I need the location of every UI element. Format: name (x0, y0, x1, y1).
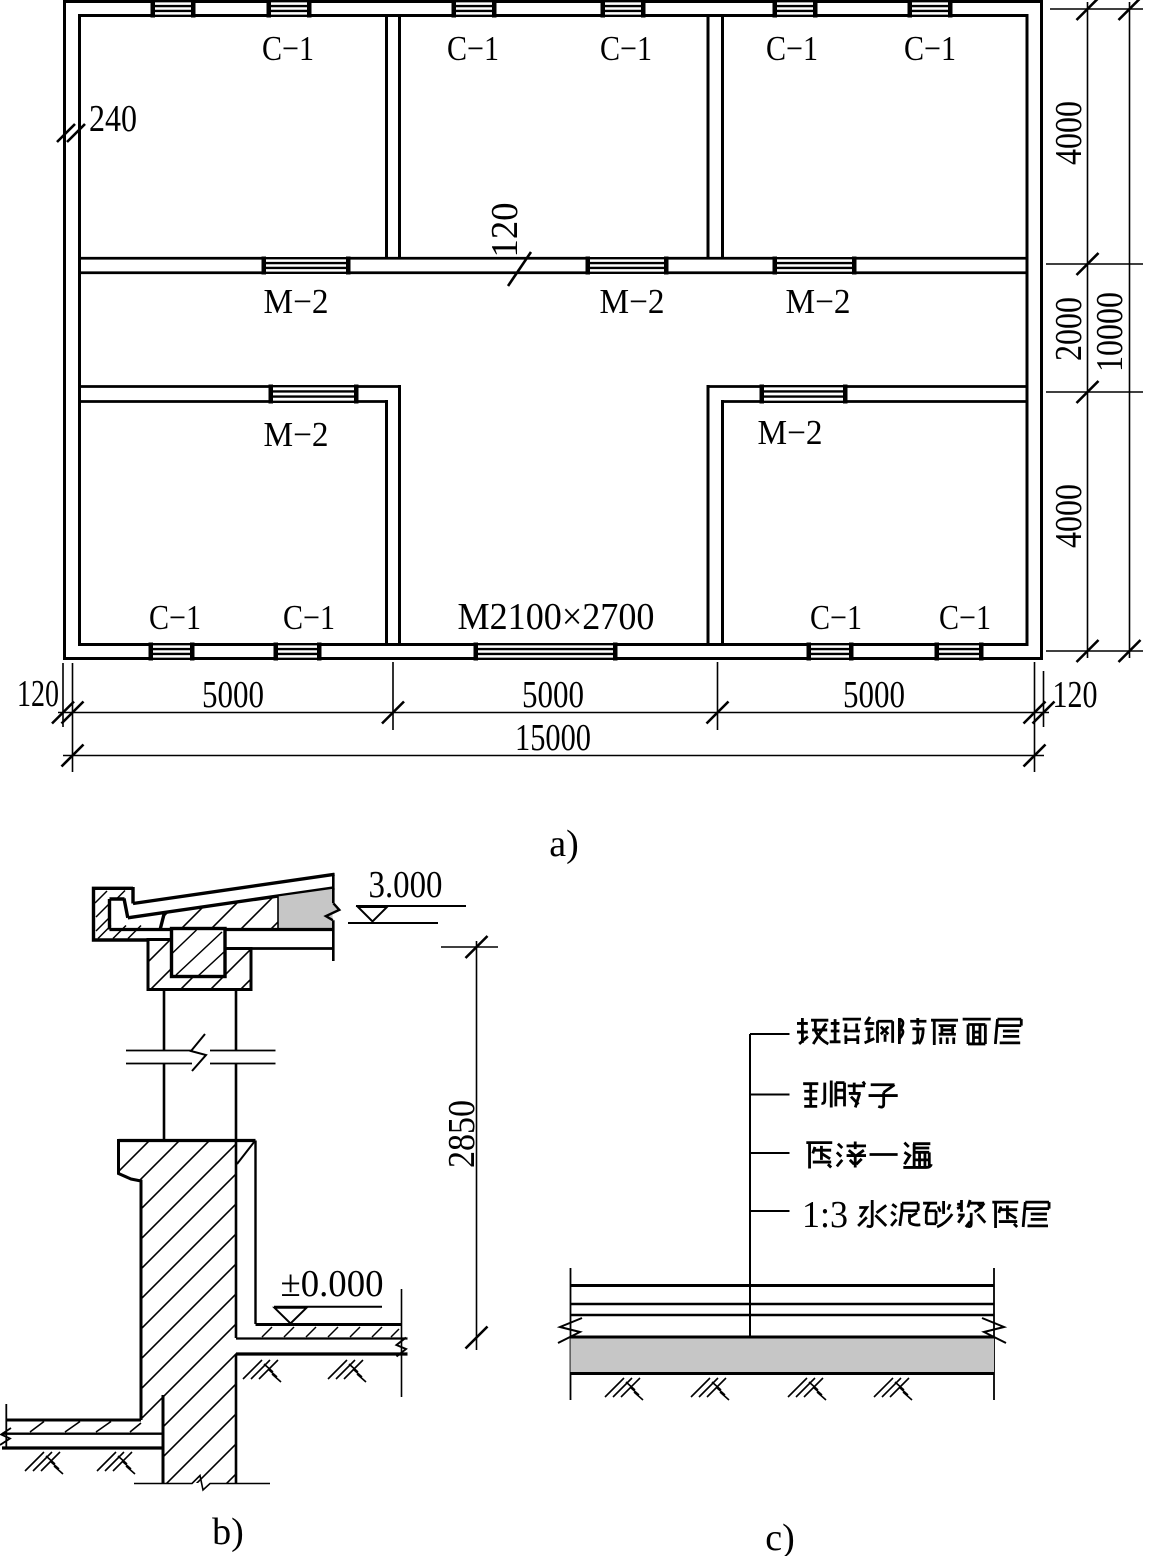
svg-text:C−1: C−1 (447, 29, 499, 68)
svg-text:4000: 4000 (1048, 484, 1090, 548)
svg-text:c): c) (765, 1517, 795, 1556)
svg-text:C−1: C−1 (904, 29, 956, 68)
svg-text:C−1: C−1 (939, 598, 991, 637)
svg-text:5000: 5000 (843, 674, 905, 716)
svg-text:a): a) (549, 823, 579, 865)
svg-text:120: 120 (17, 673, 59, 715)
svg-text:M−2: M−2 (600, 282, 665, 321)
svg-text:5000: 5000 (202, 674, 264, 716)
svg-text:C−1: C−1 (810, 598, 862, 637)
svg-text:3.000: 3.000 (369, 864, 443, 906)
svg-text:M−2: M−2 (264, 415, 329, 454)
svg-text:M−2: M−2 (758, 413, 823, 452)
svg-text:C−1: C−1 (766, 29, 818, 68)
svg-text:C−1: C−1 (262, 29, 314, 68)
svg-text:120: 120 (1053, 674, 1098, 716)
svg-text:M−2: M−2 (264, 282, 329, 321)
svg-text:2000: 2000 (1048, 297, 1090, 361)
svg-text:M2100×2700: M2100×2700 (458, 596, 655, 638)
svg-text:1:3: 1:3 (802, 1194, 848, 1236)
svg-text:10000: 10000 (1089, 292, 1131, 372)
svg-text:±0.000: ±0.000 (281, 1263, 384, 1305)
svg-text:5000: 5000 (522, 674, 584, 716)
svg-text:240: 240 (89, 98, 137, 140)
svg-text:C−1: C−1 (283, 598, 335, 637)
svg-text:2850: 2850 (441, 1100, 483, 1168)
svg-text:4000: 4000 (1048, 101, 1090, 165)
svg-text:C−1: C−1 (149, 598, 201, 637)
svg-text:15000: 15000 (515, 717, 591, 759)
svg-text:M−2: M−2 (786, 282, 851, 321)
svg-text:C−1: C−1 (600, 29, 652, 68)
svg-text:b): b) (212, 1511, 244, 1553)
svg-text:120: 120 (484, 203, 526, 258)
